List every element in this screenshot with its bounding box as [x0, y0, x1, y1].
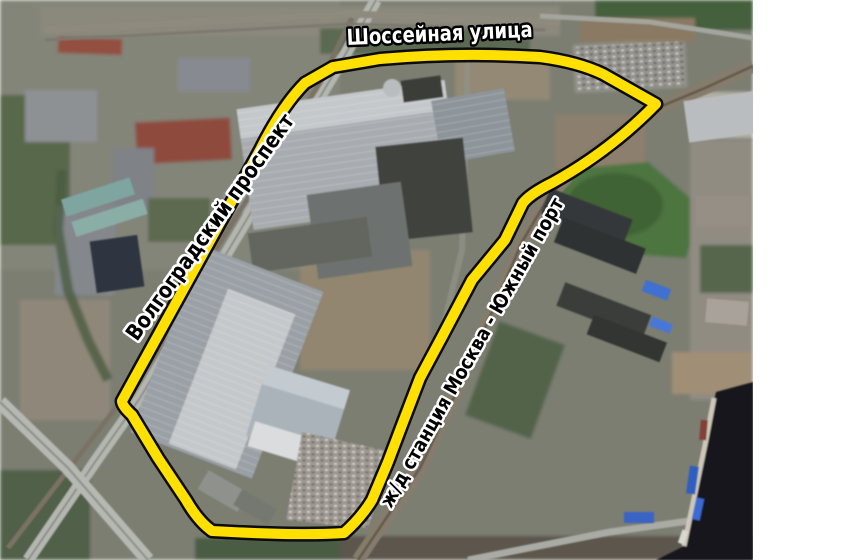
silver-tank	[383, 79, 401, 97]
dark-navy-building-west	[90, 235, 145, 293]
building-east-strip	[696, 196, 751, 226]
building-east-strip	[705, 298, 749, 326]
blue-roof-building-south	[624, 512, 654, 523]
gray-block-building	[178, 58, 250, 92]
gray-block-building	[25, 90, 97, 142]
trees-east	[700, 245, 753, 293]
annotated-map-screenshot: Шоссейная улица Волгоградский проспект ж…	[0, 0, 850, 560]
white-margin	[753, 0, 850, 560]
gray-block-building	[112, 148, 154, 210]
satellite-map: Шоссейная улица Волгоградский проспект ж…	[0, 0, 753, 560]
